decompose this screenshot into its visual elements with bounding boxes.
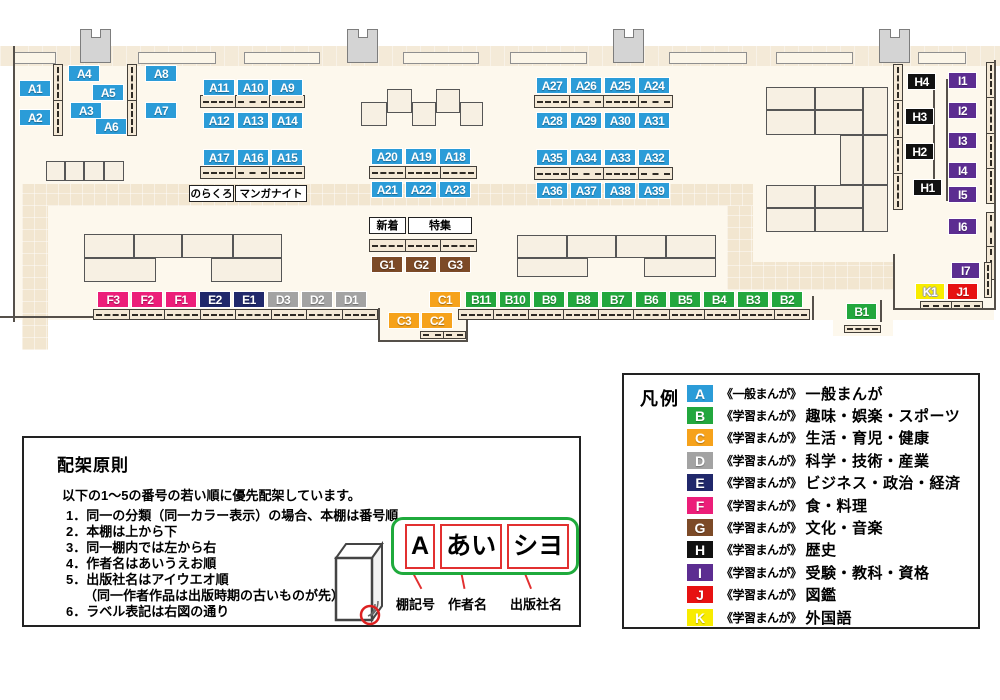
wall	[13, 46, 15, 322]
legend-label: 科学・技術・産業	[806, 450, 930, 471]
legend-prefix: 《学習まんが》	[721, 429, 802, 446]
bookshelf-section	[639, 168, 673, 179]
bookshelf-section	[987, 134, 994, 169]
shelf-label-a28: A28	[536, 112, 568, 129]
legend-prefix: 《一般まんが》	[721, 385, 802, 402]
shelf-label-a38: A38	[604, 182, 636, 199]
legend-prefix: 《学習まんが》	[721, 564, 802, 581]
bookshelf-section	[128, 65, 136, 101]
shelf-note-norakuro: のらくろ	[189, 185, 234, 202]
table	[517, 258, 588, 277]
bookshelf	[53, 64, 63, 136]
legend-item-i: I《学習まんが》受験・教科・資格	[686, 561, 961, 583]
shelf-note-new-arrivals: 新着	[369, 217, 406, 234]
table	[766, 110, 815, 135]
shelf-label-i3: I3	[948, 132, 977, 149]
legend-item-j: J《学習まんが》図鑑	[686, 584, 961, 606]
shelf-label-c1: C1	[429, 291, 461, 308]
legend-prefix: 《学習まんが》	[721, 452, 802, 469]
bookshelf-section	[564, 310, 599, 319]
bookshelf-section	[987, 213, 994, 247]
shelf-label-h3: H3	[905, 108, 934, 125]
shelf-label-b2: B2	[771, 291, 803, 308]
table	[84, 234, 134, 258]
legend-item-k: K《学習まんが》外国語	[686, 606, 961, 628]
legend-item-f: F《学習まんが》食・料理	[686, 494, 961, 516]
shelf-label-f2: F2	[131, 291, 163, 308]
window	[776, 52, 853, 64]
legend-label: 趣味・娯楽・スポーツ	[806, 405, 961, 426]
shelf-label-a26: A26	[570, 77, 602, 94]
shelf-label-b10: B10	[499, 291, 531, 308]
table	[815, 110, 863, 135]
legend-chip-h: H	[686, 540, 714, 559]
bookshelf-section	[128, 101, 136, 136]
legend-chip-e: E	[686, 473, 714, 492]
shelf-label-i1: I1	[948, 72, 977, 89]
legend-chip-f: F	[686, 496, 714, 515]
legend-label: 生活・育児・健康	[806, 427, 930, 448]
legend-label: 受験・教科・資格	[806, 562, 930, 583]
bookshelf-section	[54, 101, 62, 136]
bookshelf	[844, 325, 881, 333]
label-shelf-code: A	[405, 524, 435, 569]
table	[412, 102, 436, 126]
shelving-principles-panel: 配架原則 以下の1～5の番号の若い順に優先配架しています。 1．同一の分類（同一…	[22, 436, 581, 627]
shelf-label-a22: A22	[405, 181, 437, 198]
table	[361, 102, 387, 126]
bookshelf	[200, 95, 305, 108]
shelf-label-a18: A18	[439, 148, 471, 165]
shelf-label-d2: D2	[301, 291, 333, 308]
caption-author: 作者名	[448, 594, 487, 613]
legend-label: 歴史	[806, 539, 837, 560]
bookshelf	[893, 64, 903, 210]
legend-chip-j: J	[686, 585, 714, 604]
bookshelf-section	[634, 310, 669, 319]
shelf-label-f3: F3	[97, 291, 129, 308]
shelf-label-a36: A36	[536, 182, 568, 199]
table	[815, 185, 863, 208]
shelf-label-a24: A24	[638, 77, 670, 94]
window	[138, 52, 216, 64]
window	[669, 52, 747, 64]
bookshelf-section	[670, 310, 705, 319]
caption-publisher: 出版社名	[510, 594, 562, 613]
shelf-label-a5: A5	[92, 84, 124, 101]
shelf-label-a16: A16	[237, 149, 269, 166]
pillar	[347, 29, 378, 63]
bookshelf-section	[535, 96, 570, 107]
bookshelf-section	[459, 310, 494, 319]
bookshelf-section	[599, 310, 634, 319]
bookshelf-section	[201, 310, 237, 319]
bookshelf	[369, 239, 477, 252]
shelf-label-b1: B1	[846, 303, 877, 320]
legend-chip-b: B	[686, 406, 714, 425]
legend-label: 図鑑	[806, 584, 837, 605]
shelf-label-j1: J1	[947, 283, 978, 300]
legend-label: 食・料理	[806, 495, 868, 516]
table	[616, 235, 666, 258]
shelf-label-a1: A1	[19, 80, 51, 97]
bookshelf	[127, 64, 137, 136]
bookshelf-section	[270, 167, 304, 178]
bookshelf	[200, 166, 305, 179]
wall	[933, 82, 935, 188]
shelf-label-i4: I4	[948, 162, 977, 179]
principles-intro: 以下の1～5の番号の若い順に優先配架しています。	[62, 485, 361, 504]
shelf-label-a34: A34	[570, 149, 602, 166]
bookshelf-section	[130, 310, 166, 319]
shelf-label-c3: C3	[388, 312, 420, 329]
shelf-label-a20: A20	[371, 148, 403, 165]
bookshelf-section	[639, 96, 673, 107]
pillar	[80, 29, 111, 63]
legend-chip-d: D	[686, 451, 714, 470]
table	[863, 87, 888, 135]
shelf-label-a39: A39	[638, 182, 670, 199]
shelf-label-a2: A2	[19, 109, 51, 126]
bookshelf-section	[370, 240, 406, 251]
table	[104, 161, 124, 181]
shelf-note-featured: 特集	[408, 217, 472, 234]
table	[815, 87, 863, 110]
bookshelf	[93, 309, 378, 320]
shelf-label-g1: G1	[371, 256, 403, 273]
legend-title: 凡例	[640, 385, 680, 411]
shelf-label-b11: B11	[465, 291, 497, 308]
window	[403, 52, 479, 64]
shelf-label-g3: G3	[439, 256, 471, 273]
legend-label: ビジネス・政治・経済	[806, 472, 961, 493]
walkway	[727, 206, 753, 264]
bookshelf-section	[236, 167, 271, 178]
legend-item-b: B《学習まんが》趣味・娯楽・スポーツ	[686, 404, 961, 426]
shelf-label-a4: A4	[68, 65, 100, 82]
bookshelf-section	[985, 263, 991, 297]
bookshelf-section	[570, 96, 605, 107]
bookshelf-section	[201, 96, 236, 107]
shelf-label-a12: A12	[203, 112, 235, 129]
shelf-label-i2: I2	[948, 102, 977, 119]
bookshelf-section	[494, 310, 529, 319]
shelf-label-d1: D1	[335, 291, 367, 308]
legend-label: 外国語	[806, 607, 853, 628]
shelf-label-d3: D3	[267, 291, 299, 308]
bookshelf	[458, 309, 810, 320]
shelf-label-a31: A31	[638, 112, 670, 129]
bookshelf-section	[845, 326, 880, 332]
table	[863, 135, 888, 185]
bookshelf-section	[406, 240, 442, 251]
shelf-label-i5: I5	[948, 186, 977, 203]
shelf-label-i6: I6	[948, 218, 977, 235]
legend-item-g: G《学習まんが》文化・音楽	[686, 516, 961, 538]
shelf-label-h4: H4	[907, 73, 936, 90]
shelf-note-manga-night: マンガナイト	[235, 185, 307, 202]
table	[863, 185, 888, 232]
table	[387, 89, 412, 113]
shelf-label-a10: A10	[237, 79, 269, 96]
bookshelf-section	[987, 169, 994, 203]
shelf-label-a33: A33	[604, 149, 636, 166]
window	[510, 52, 587, 64]
table	[211, 258, 282, 282]
shelf-label-a14: A14	[271, 112, 303, 129]
legend-prefix: 《学習まんが》	[721, 541, 802, 558]
shelf-label-a6: A6	[95, 118, 127, 135]
shelf-label-b5: B5	[669, 291, 701, 308]
shelf-label-i7: I7	[951, 262, 980, 279]
bookshelf-section	[343, 310, 378, 319]
shelf-label-a30: A30	[604, 112, 636, 129]
table	[766, 185, 815, 208]
shelf-label-a25: A25	[604, 77, 636, 94]
table	[460, 102, 483, 126]
wall	[466, 320, 468, 342]
bookshelf-section	[94, 310, 130, 319]
spine-label-example: A あい シヨ	[391, 517, 579, 575]
window	[918, 52, 966, 64]
bookshelf-section	[740, 310, 775, 319]
legend-panel: 凡例 A《一般まんが》一般まんが B《学習まんが》趣味・娯楽・スポーツ C《学習…	[622, 373, 980, 629]
shelf-label-h1: H1	[913, 179, 942, 196]
shelf-label-a9: A9	[271, 79, 303, 96]
bookshelf-section	[987, 63, 994, 98]
legend-prefix: 《学習まんが》	[721, 497, 802, 514]
legend-chip-a: A	[686, 384, 714, 403]
shelf-label-a13: A13	[237, 112, 269, 129]
window	[14, 52, 56, 64]
walkway	[727, 262, 893, 290]
bookshelf-section	[441, 167, 476, 178]
shelf-label-e1: E1	[233, 291, 265, 308]
bookshelf-section	[535, 168, 570, 179]
shelf-label-a19: A19	[405, 148, 437, 165]
legend-item-h: H《学習まんが》歴史	[686, 539, 961, 561]
table	[840, 135, 863, 185]
bookshelf-section	[165, 310, 201, 319]
table	[766, 208, 815, 232]
shelf-label-c2: C2	[421, 312, 453, 329]
bookshelf-section	[270, 96, 304, 107]
bookshelf-section	[272, 310, 308, 319]
shelf-label-b9: B9	[533, 291, 565, 308]
legend-chip-c: C	[686, 428, 714, 447]
table	[666, 235, 716, 258]
bookshelf	[369, 166, 477, 179]
principles-title: 配架原則	[57, 451, 129, 476]
bookshelf-section	[987, 98, 994, 133]
bookshelf-section	[894, 174, 902, 209]
legend-prefix: 《学習まんが》	[721, 407, 802, 424]
legend-prefix: 《学習まんが》	[721, 519, 802, 536]
bookshelf-section	[894, 138, 902, 174]
shelf-label-a37: A37	[570, 182, 602, 199]
table	[644, 258, 716, 277]
bookshelf-section	[894, 65, 902, 101]
table	[134, 234, 182, 258]
table	[182, 234, 233, 258]
bookshelf	[534, 167, 673, 180]
bookshelf	[984, 262, 992, 298]
legend-label: 一般まんが	[806, 383, 884, 404]
table	[84, 258, 156, 282]
bookshelf-section	[441, 240, 476, 251]
legend-items: A《一般まんが》一般まんが B《学習まんが》趣味・娯楽・スポーツ C《学習まんが…	[686, 382, 961, 628]
bookshelf-section	[894, 101, 902, 137]
bookshelf-section	[529, 310, 564, 319]
legend-item-a: A《一般まんが》一般まんが	[686, 382, 961, 404]
shelf-label-a15: A15	[271, 149, 303, 166]
bookshelf-section	[54, 65, 62, 101]
bookshelf-section	[775, 310, 809, 319]
wall	[994, 60, 996, 310]
principles-item: 1．同一の分類（同一カラー表示）の場合、本棚は番号順	[66, 508, 398, 524]
legend-label: 文化・音楽	[806, 517, 884, 538]
table	[815, 208, 863, 232]
bookshelf-section	[236, 310, 272, 319]
label-publisher: シヨ	[507, 524, 569, 569]
walkway	[22, 206, 48, 350]
bookshelf-section	[604, 168, 639, 179]
label-author: あい	[440, 524, 502, 569]
shelf-label-a3: A3	[70, 102, 102, 119]
wall	[880, 300, 882, 322]
shelf-label-a17: A17	[203, 149, 235, 166]
table	[233, 234, 282, 258]
shelf-label-a29: A29	[570, 112, 602, 129]
bookshelf-section	[307, 310, 343, 319]
shelf-label-a11: A11	[203, 79, 235, 96]
bookshelf-section	[570, 168, 605, 179]
legend-prefix: 《学習まんが》	[721, 474, 802, 491]
table	[46, 161, 65, 181]
bookshelf-section	[406, 167, 442, 178]
shelf-label-a23: A23	[439, 181, 471, 198]
table	[766, 87, 815, 110]
legend-chip-i: I	[686, 563, 714, 582]
shelf-label-a35: A35	[536, 149, 568, 166]
pillar	[613, 29, 644, 63]
wall	[378, 308, 380, 342]
shelf-label-e2: E2	[199, 291, 231, 308]
shelf-label-b7: B7	[601, 291, 633, 308]
legend-item-d: D《学習まんが》科学・技術・産業	[686, 449, 961, 471]
pillar	[879, 29, 910, 63]
legend-chip-g: G	[686, 518, 714, 537]
legend-chip-k: K	[686, 608, 714, 627]
shelf-label-a27: A27	[536, 77, 568, 94]
table	[65, 161, 84, 181]
shelf-label-k1: K1	[915, 283, 945, 300]
bookshelf	[534, 95, 673, 108]
bookshelf-section	[444, 332, 466, 338]
table	[436, 89, 460, 113]
shelf-label-f1: F1	[165, 291, 197, 308]
table	[517, 235, 567, 258]
shelf-label-a32: A32	[638, 149, 670, 166]
bookshelf-section	[604, 96, 639, 107]
wall	[812, 296, 814, 320]
shelf-label-a8: A8	[145, 65, 177, 82]
legend-prefix: 《学習まんが》	[721, 586, 802, 603]
legend-prefix: 《学習まんが》	[721, 609, 802, 626]
shelf-label-g2: G2	[405, 256, 437, 273]
wall	[895, 308, 994, 310]
shelf-label-h2: H2	[905, 143, 934, 160]
shelf-label-b8: B8	[567, 291, 599, 308]
wall	[378, 340, 468, 342]
library-shelf-map-page: のらくろ マンガナイト 新着 特集 A1A2A3A4A5A6A7A8A9A10A…	[0, 0, 1000, 700]
bookshelf-section	[370, 167, 406, 178]
bookshelf-section	[705, 310, 740, 319]
shelf-label-a21: A21	[371, 181, 403, 198]
shelf-label-b6: B6	[635, 291, 667, 308]
window	[244, 52, 320, 64]
legend-item-e: E《学習まんが》ビジネス・政治・経済	[686, 472, 961, 494]
shelf-label-b3: B3	[737, 291, 769, 308]
bookshelf-section	[201, 167, 236, 178]
caption-shelf-code: 棚記号	[396, 594, 435, 613]
legend-item-c: C《学習まんが》生活・育児・健康	[686, 427, 961, 449]
table	[567, 235, 616, 258]
table	[84, 161, 104, 181]
shelf-label-a7: A7	[145, 102, 177, 119]
wall	[893, 254, 895, 310]
bookshelf-section	[236, 96, 271, 107]
bookshelf	[420, 331, 466, 339]
shelf-label-b4: B4	[703, 291, 735, 308]
bookshelf-section	[421, 332, 444, 338]
